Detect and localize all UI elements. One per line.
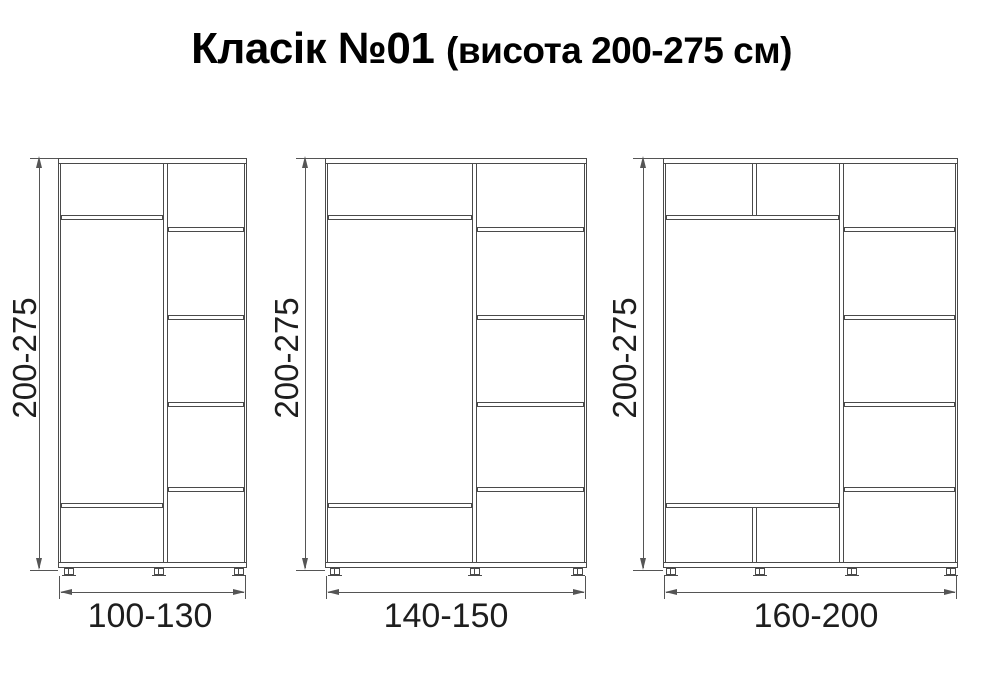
- center-divider: [163, 163, 168, 563]
- height-dim-line: [305, 160, 306, 568]
- shelf: [477, 315, 584, 320]
- height-label: 200-275: [608, 288, 642, 428]
- foot: [62, 568, 76, 576]
- right-side-panel: [955, 158, 958, 568]
- sub-divider: [752, 163, 757, 217]
- center-divider: [839, 163, 844, 563]
- dim-arrow-right-icon: [233, 589, 245, 595]
- shelf: [844, 227, 955, 232]
- dim-extension-line: [956, 576, 957, 599]
- foot: [753, 568, 767, 576]
- dim-extension-line: [585, 576, 586, 599]
- top-panel: [663, 158, 958, 164]
- dim-arrow-down-icon: [36, 558, 42, 570]
- foot: [944, 568, 958, 576]
- dim-arrow-left-icon: [665, 589, 677, 595]
- cabinet-3: [663, 158, 958, 568]
- dim-arrow-left-icon: [60, 589, 72, 595]
- dim-arrow-left-icon: [327, 589, 339, 595]
- shelf: [477, 402, 584, 407]
- top-panel: [58, 158, 247, 164]
- shelf: [168, 315, 244, 320]
- shelf: [61, 503, 163, 508]
- dim-arrow-right-icon: [944, 589, 956, 595]
- center-divider: [472, 163, 477, 563]
- right-side-panel: [244, 158, 247, 568]
- title-sub: (висота 200-275 см): [446, 30, 792, 71]
- shelf: [666, 503, 839, 508]
- shelf: [666, 215, 839, 220]
- foot: [571, 568, 585, 576]
- cabinet-2: [325, 158, 587, 568]
- dim-extension-line: [30, 158, 58, 159]
- shelf: [168, 227, 244, 232]
- bottom-panel: [325, 562, 587, 568]
- bottom-panel: [663, 562, 958, 568]
- dim-extension-line: [664, 576, 665, 599]
- dim-extension-line: [296, 158, 325, 159]
- width-dim-line: [61, 592, 244, 593]
- page-title: Класік №01 (висота 200-275 см): [0, 24, 983, 74]
- shelf: [477, 487, 584, 492]
- height-label: 200-275: [270, 288, 304, 428]
- title-main: Класік №01: [191, 24, 434, 73]
- shelf: [844, 315, 955, 320]
- dim-arrow-right-icon: [573, 589, 585, 595]
- shelf: [168, 487, 244, 492]
- wardrobe-diagram: Класік №01 (висота 200-275 см) 200-275 1…: [0, 0, 983, 700]
- dim-extension-line: [245, 576, 246, 599]
- dim-extension-line: [30, 570, 58, 571]
- foot: [845, 568, 859, 576]
- cabinet-1: [58, 158, 247, 568]
- dim-extension-line: [59, 576, 60, 599]
- foot: [328, 568, 342, 576]
- width-dim-line: [328, 592, 584, 593]
- width-label: 160-200: [726, 597, 906, 636]
- width-dim-line: [666, 592, 955, 593]
- shelf: [328, 503, 472, 508]
- dim-extension-line: [633, 158, 663, 159]
- shelf: [477, 227, 584, 232]
- foot: [468, 568, 482, 576]
- shelf: [328, 215, 472, 220]
- dim-extension-line: [326, 576, 327, 599]
- height-label: 200-275: [8, 288, 42, 428]
- top-panel: [325, 158, 587, 164]
- shelf: [844, 402, 955, 407]
- dim-arrow-down-icon: [640, 558, 646, 570]
- dim-extension-line: [633, 570, 663, 571]
- width-label: 100-130: [60, 597, 240, 636]
- shelf: [61, 215, 163, 220]
- shelf: [168, 402, 244, 407]
- shelf: [844, 487, 955, 492]
- foot: [664, 568, 678, 576]
- sub-divider: [752, 506, 757, 563]
- foot: [152, 568, 166, 576]
- foot: [232, 568, 246, 576]
- height-dim-line: [643, 160, 644, 568]
- width-label: 140-150: [356, 597, 536, 636]
- right-side-panel: [584, 158, 587, 568]
- dim-extension-line: [296, 570, 325, 571]
- title-space: [434, 24, 446, 73]
- dim-arrow-down-icon: [302, 558, 308, 570]
